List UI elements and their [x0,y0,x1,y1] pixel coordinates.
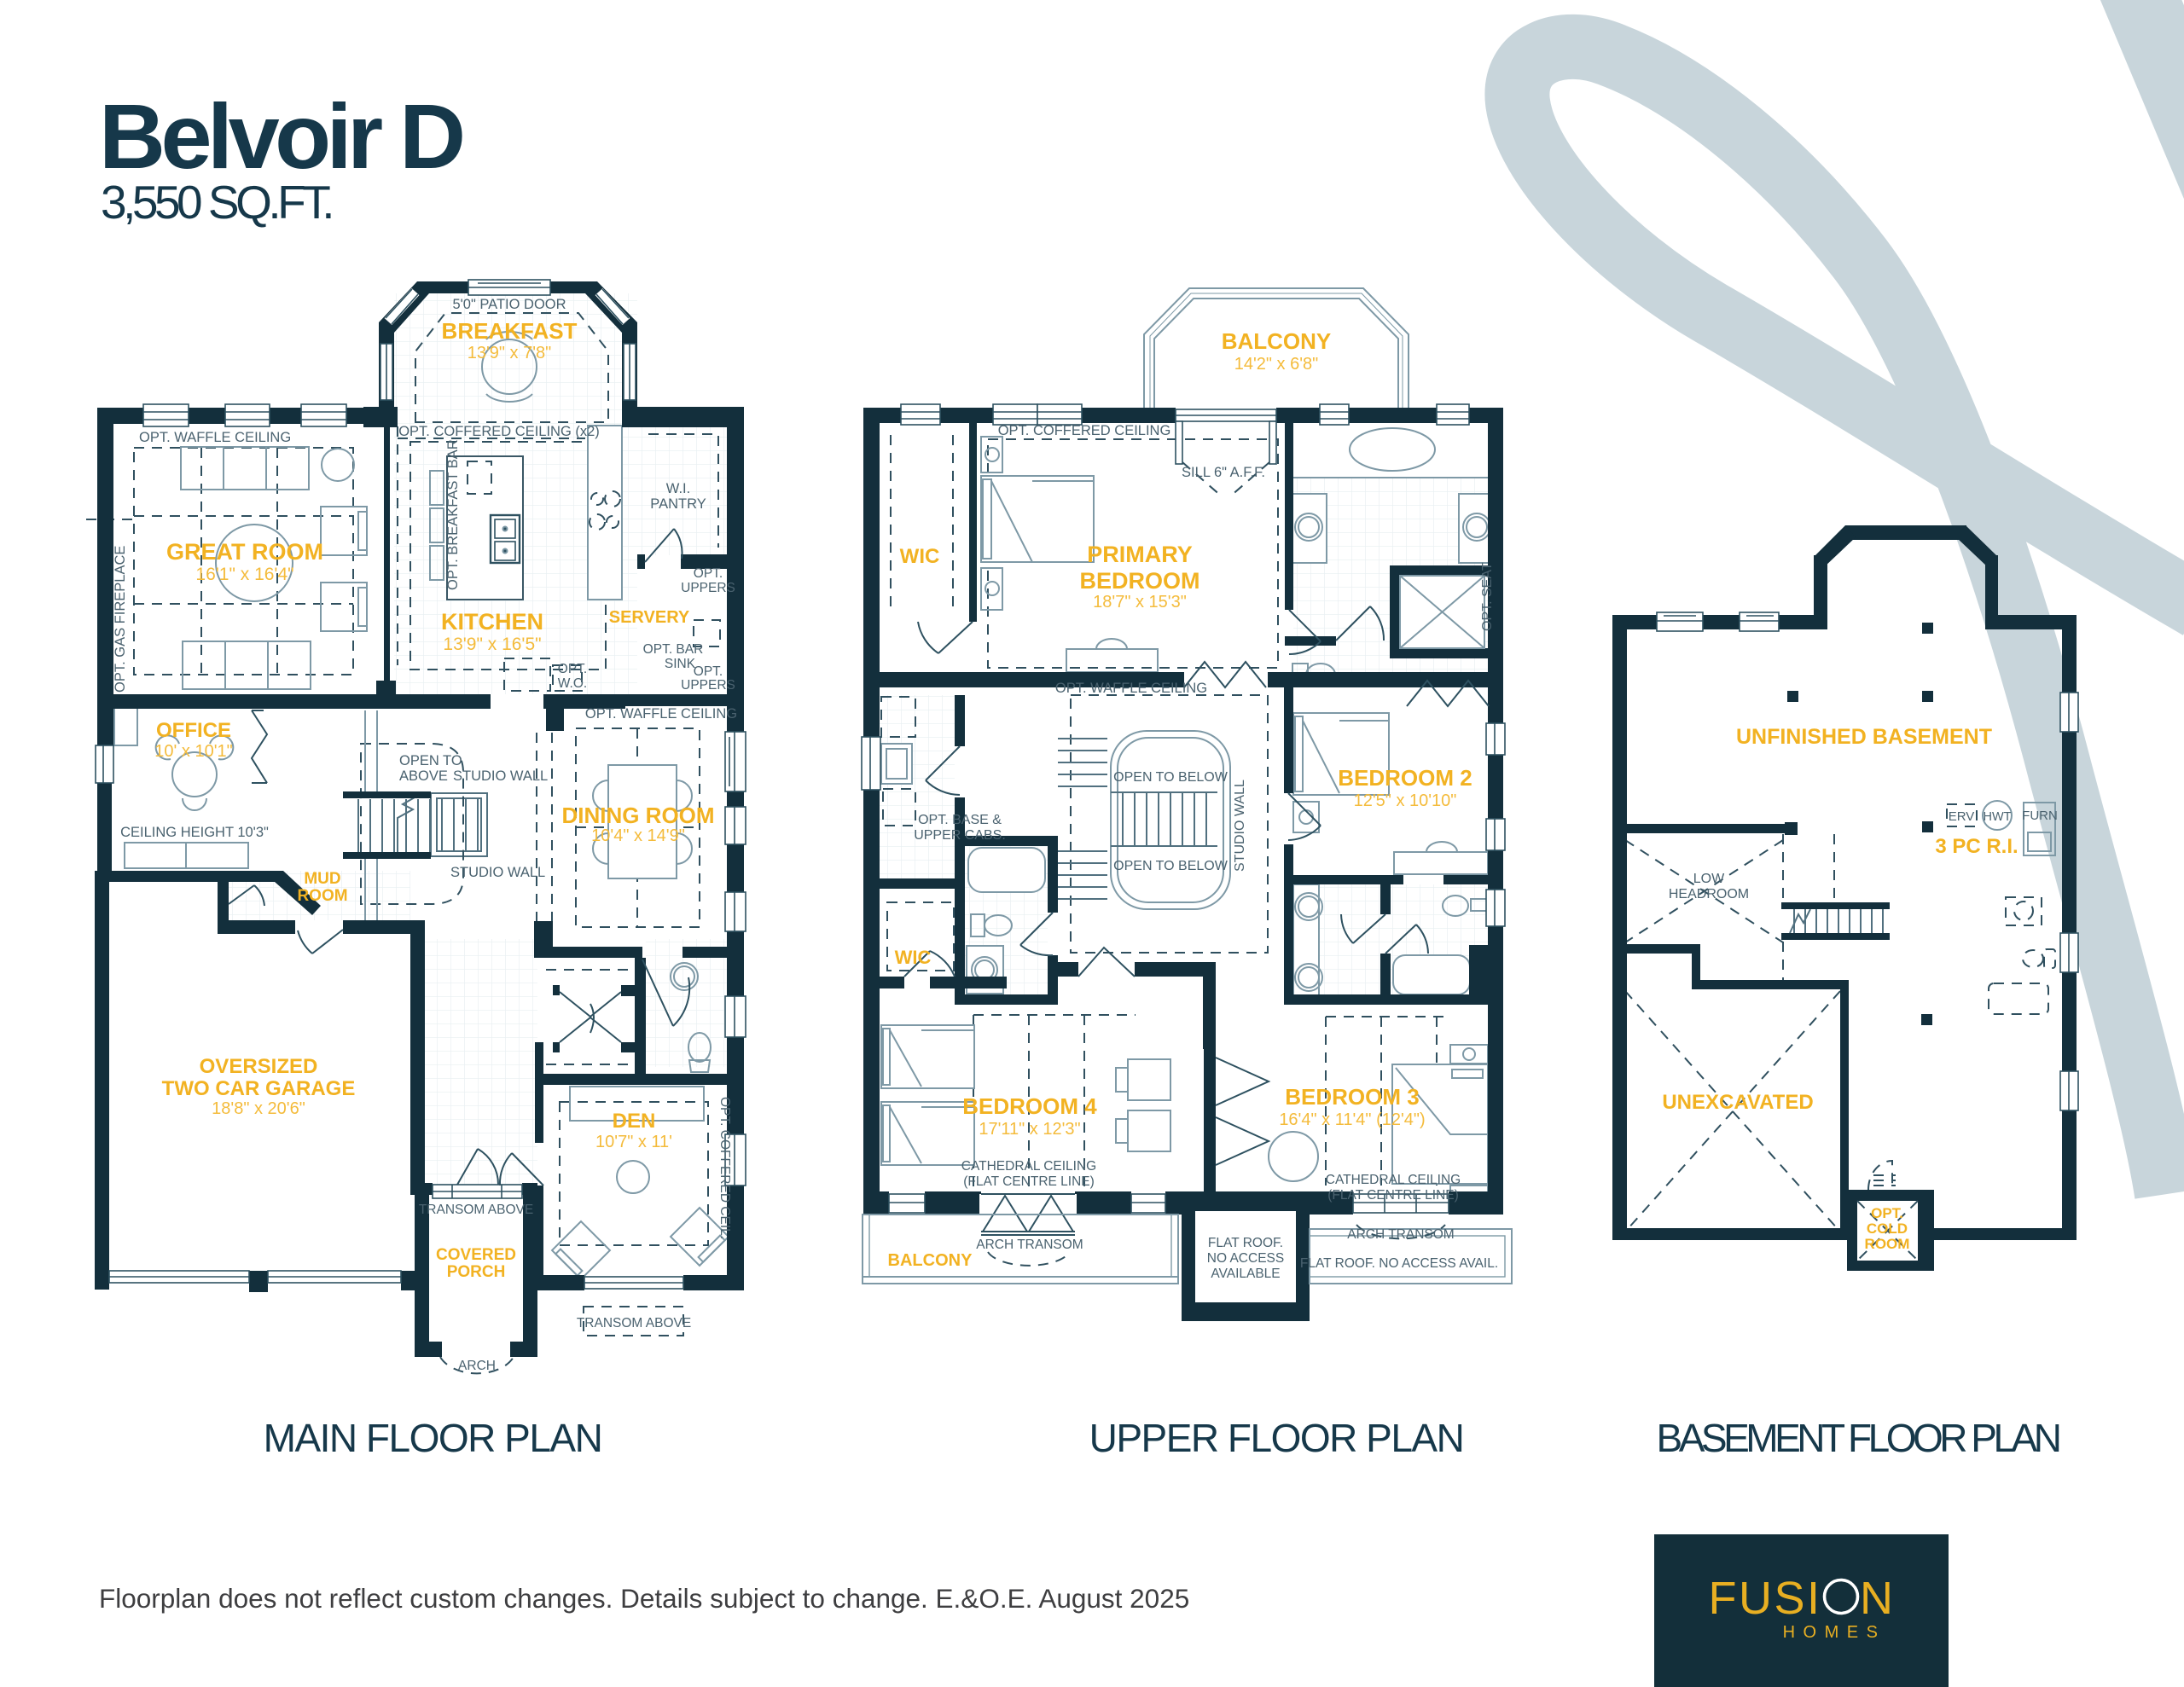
svg-text:LOW: LOW [1693,872,1725,886]
svg-text:OPEN TO BELOW: OPEN TO BELOW [1113,770,1228,785]
svg-text:(FLAT CENTRE LINE): (FLAT CENTRE LINE) [1327,1188,1459,1203]
svg-text:STUDIO WALL: STUDIO WALL [1233,780,1247,872]
svg-text:TRANSOM ABOVE: TRANSOM ABOVE [577,1316,691,1330]
svg-text:UNFINISHED BASEMENT: UNFINISHED BASEMENT [1736,725,1992,749]
svg-text:OPT. BASE &: OPT. BASE & [918,813,1002,827]
svg-text:BREAKFAST: BREAKFAST [442,318,578,344]
svg-text:COVERED: COVERED [436,1246,516,1264]
svg-text:OPT. COFFERED CEILING (x2): OPT. COFFERED CEILING (x2) [398,424,600,439]
svg-text:PANTRY: PANTRY [650,496,706,512]
svg-text:UPPERS: UPPERS [681,581,735,595]
svg-text:18'8" x 20'6": 18'8" x 20'6" [212,1099,305,1118]
svg-text:OFFICE: OFFICE [156,719,231,742]
svg-text:17'11" x 12'3": 17'11" x 12'3" [979,1120,1080,1139]
svg-text:UPPER FLOOR PLAN: UPPER FLOOR PLAN [1089,1416,1464,1460]
svg-text:18'7" x 15'3": 18'7" x 15'3" [1093,593,1187,612]
svg-text:OPEN TO: OPEN TO [399,753,462,768]
svg-text:FLAT ROOF. NO ACCESS AVAIL.: FLAT ROOF. NO ACCESS AVAIL. [1300,1256,1498,1271]
svg-text:ARCH TRANSOM: ARCH TRANSOM [976,1238,1083,1252]
svg-text:FURN: FURN [2022,809,2058,823]
svg-text:MAIN FLOOR PLAN: MAIN FLOOR PLAN [264,1416,602,1460]
svg-text:10' x 10'1": 10' x 10'1" [154,742,232,761]
svg-text:OVERSIZED: OVERSIZED [200,1055,318,1078]
svg-text:ERV: ERV [1949,809,1975,824]
svg-text:ABOVE: ABOVE [399,768,448,784]
svg-text:DEN: DEN [613,1110,656,1133]
svg-text:OPT. COFFERED CEILING: OPT. COFFERED CEILING [998,423,1171,438]
svg-text:OPT.: OPT. [558,662,587,676]
svg-text:ROOM: ROOM [297,887,347,905]
svg-text:ARCH TRANSOM: ARCH TRANSOM [1347,1227,1454,1242]
svg-text:10'7" x 11': 10'7" x 11' [595,1133,672,1151]
svg-text:TWO CAR GARAGE: TWO CAR GARAGE [162,1077,356,1100]
svg-text:14'2" x 6'8": 14'2" x 6'8" [1234,355,1319,374]
svg-text:FLAT ROOF.: FLAT ROOF. [1208,1236,1283,1250]
svg-text:W.I.: W.I. [666,481,690,496]
svg-text:CEILING HEIGHT 10'3": CEILING HEIGHT 10'3" [120,825,269,840]
svg-text:BALCONY: BALCONY [1222,328,1332,354]
svg-text:WIC: WIC [900,545,940,568]
svg-text:10'4" x 14'9": 10'4" x 14'9" [591,826,685,845]
svg-text:KITCHEN: KITCHEN [441,609,543,635]
svg-text:SINK: SINK [665,657,696,671]
svg-text:OPT. BREAKFAST BAR: OPT. BREAKFAST BAR [445,439,461,590]
svg-text:UNEXCAVATED: UNEXCAVATED [1662,1091,1813,1114]
svg-text:12'5" x 10'10": 12'5" x 10'10" [1354,791,1457,810]
svg-text:DINING ROOM: DINING ROOM [561,803,714,828]
svg-text:HEADROOM: HEADROOM [1669,887,1749,901]
svg-text:CATHEDRAL CEILING: CATHEDRAL CEILING [1326,1173,1461,1187]
svg-text:3,550 SQ.FT.: 3,550 SQ.FT. [101,176,331,229]
svg-text:BEDROOM 2: BEDROOM 2 [1338,765,1472,791]
svg-text:UPPER CABS.: UPPER CABS. [914,828,1006,843]
svg-text:AVAILABLE: AVAILABLE [1211,1267,1280,1281]
svg-text:16'1" x 16'4": 16'1" x 16'4" [195,565,293,584]
svg-text:SERVERY: SERVERY [609,608,690,627]
svg-text:OPT.: OPT. [694,664,723,679]
svg-text:COLD: COLD [1867,1220,1908,1237]
svg-text:OPEN TO BELOW: OPEN TO BELOW [1113,859,1228,873]
svg-text:Belvoir D: Belvoir D [99,84,462,188]
svg-text:13'9" x 7'8": 13'9" x 7'8" [468,344,552,362]
svg-text:OPT. WAFFLE CEILING: OPT. WAFFLE CEILING [585,706,737,722]
svg-text:BALCONY: BALCONY [888,1251,973,1270]
svg-text:WIC: WIC [895,947,932,968]
svg-text:STUDIO WALL: STUDIO WALL [453,768,548,784]
svg-text:OPT. WAFFLE CEILING: OPT. WAFFLE CEILING [1055,681,1207,696]
svg-text:BASEMENT FLOOR PLAN: BASEMENT FLOOR PLAN [1657,1416,2059,1460]
svg-text:HWT: HWT [1983,810,2011,824]
svg-text:TRANSOM ABOVE: TRANSOM ABOVE [419,1203,533,1217]
svg-text:MUD: MUD [304,870,340,888]
svg-text:UPPERS: UPPERS [681,678,735,693]
svg-text:Floorplan does not reflect cus: Floorplan does not reflect custom change… [99,1583,1189,1614]
svg-text:(FLAT CENTRE LINE): (FLAT CENTRE LINE) [963,1174,1095,1189]
svg-text:OPT. COFFERED CEIL.: OPT. COFFERED CEIL. [717,1097,732,1239]
svg-text:BEDROOM: BEDROOM [1080,568,1200,594]
svg-text:BEDROOM 3: BEDROOM 3 [1285,1084,1419,1110]
svg-text:PORCH: PORCH [447,1263,506,1281]
svg-text:CATHEDRAL CEILING: CATHEDRAL CEILING [961,1159,1096,1174]
svg-text:BEDROOM 4: BEDROOM 4 [962,1093,1097,1119]
svg-text:ARCH: ARCH [458,1359,496,1373]
svg-text:OPT. SEAT: OPT. SEAT [1480,562,1495,631]
svg-text:PRIMARY: PRIMARY [1087,542,1193,567]
svg-text:3 PC R.I.: 3 PC R.I. [1935,835,2018,858]
svg-text:W.O.: W.O. [558,676,587,691]
svg-text:NO ACCESS: NO ACCESS [1207,1251,1284,1266]
svg-text:HOMES: HOMES [1783,1623,1886,1642]
svg-text:OPT.: OPT. [1871,1205,1903,1221]
svg-text:ROOM: ROOM [1865,1236,1910,1252]
svg-text:OPT. WAFFLE CEILING: OPT. WAFFLE CEILING [139,430,291,445]
svg-text:FUSION: FUSION [1708,1573,1895,1624]
svg-text:STUDIO WALL: STUDIO WALL [450,865,545,880]
svg-text:OPT. BAR: OPT. BAR [643,642,704,657]
svg-text:5'0" PATIO DOOR: 5'0" PATIO DOOR [452,297,566,312]
svg-text:13'9" x 16'5": 13'9" x 16'5" [443,635,541,654]
svg-text:GREAT ROOM: GREAT ROOM [166,539,323,565]
svg-text:OPT.: OPT. [694,566,723,581]
svg-text:SILL 6" A.F.F.: SILL 6" A.F.F. [1182,465,1265,480]
svg-text:OPT. GAS FIREPLACE: OPT. GAS FIREPLACE [113,546,128,693]
svg-text:16'4" x 11'4" (12'4"): 16'4" x 11'4" (12'4") [1279,1110,1425,1129]
